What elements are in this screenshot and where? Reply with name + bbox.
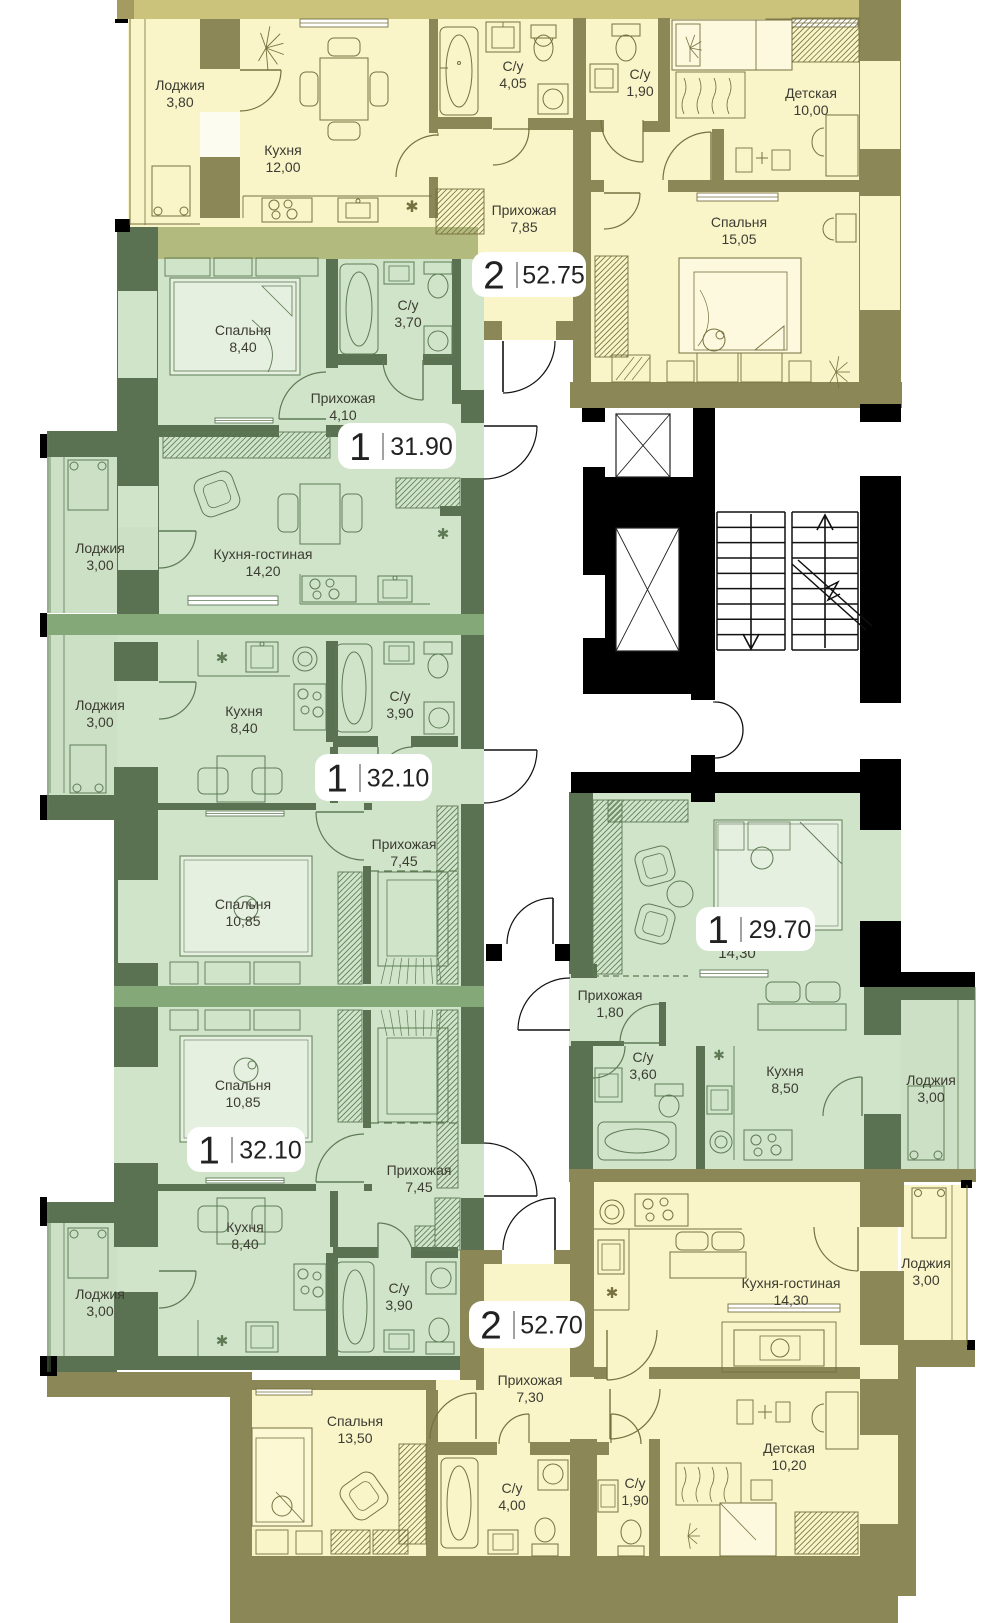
svg-text:1: 1 — [349, 426, 371, 469]
svg-text:12,00: 12,00 — [265, 159, 300, 175]
svg-text:Спальня: Спальня — [711, 214, 767, 230]
svg-text:✱: ✱ — [437, 526, 450, 543]
svg-text:С/у: С/у — [633, 1049, 654, 1065]
svg-text:Прихожая: Прихожая — [311, 390, 376, 406]
svg-text:3,60: 3,60 — [629, 1066, 656, 1082]
svg-text:Спальня: Спальня — [327, 1413, 383, 1429]
svg-text:3,00: 3,00 — [86, 557, 113, 573]
svg-text:Прихожая: Прихожая — [372, 836, 437, 852]
svg-text:✱: ✱ — [216, 1333, 229, 1350]
svg-text:Кухня: Кухня — [264, 142, 301, 158]
svg-text:14,20: 14,20 — [245, 563, 280, 579]
svg-text:4,00: 4,00 — [498, 1497, 525, 1513]
svg-text:Спальня: Спальня — [215, 322, 271, 338]
svg-text:13,50: 13,50 — [337, 1430, 372, 1446]
svg-text:10,00: 10,00 — [793, 102, 828, 118]
svg-text:15,05: 15,05 — [721, 231, 756, 247]
svg-text:29.70: 29.70 — [749, 916, 812, 944]
svg-text:1,90: 1,90 — [621, 1492, 648, 1508]
svg-text:Лоджия: Лоджия — [155, 77, 205, 93]
svg-text:С/у: С/у — [390, 688, 411, 704]
svg-text:Прихожая: Прихожая — [492, 202, 557, 218]
svg-text:8,40: 8,40 — [230, 720, 257, 736]
svg-text:Лоджия: Лоджия — [75, 540, 125, 556]
svg-text:3,00: 3,00 — [86, 1303, 113, 1319]
svg-text:4,10: 4,10 — [329, 407, 356, 423]
svg-text:31.90: 31.90 — [390, 433, 453, 461]
svg-text:✱: ✱ — [216, 650, 229, 667]
svg-text:52.70: 52.70 — [520, 1312, 583, 1340]
svg-text:3,00: 3,00 — [917, 1089, 944, 1105]
svg-text:Прихожая: Прихожая — [498, 1372, 563, 1388]
svg-text:С/у: С/у — [630, 66, 651, 82]
svg-text:Кухня-гостиная: Кухня-гостиная — [213, 546, 312, 562]
svg-text:✱: ✱ — [405, 199, 418, 216]
svg-text:С/у: С/у — [625, 1475, 646, 1491]
svg-text:Детская: Детская — [785, 85, 837, 101]
svg-text:Лоджия: Лоджия — [75, 1286, 125, 1302]
svg-text:2: 2 — [480, 1305, 502, 1348]
svg-text:2: 2 — [483, 255, 505, 298]
svg-text:1,80: 1,80 — [596, 1004, 623, 1020]
svg-text:✱: ✱ — [713, 1047, 725, 1063]
svg-text:Кухня: Кухня — [226, 1219, 263, 1235]
svg-text:Кухня-гостиная: Кухня-гостиная — [741, 1275, 840, 1291]
svg-text:Прихожая: Прихожая — [578, 987, 643, 1003]
svg-text:10,20: 10,20 — [771, 1457, 806, 1473]
svg-text:Лоджия: Лоджия — [75, 697, 125, 713]
svg-text:8,50: 8,50 — [771, 1080, 798, 1096]
svg-text:✱: ✱ — [606, 1285, 619, 1302]
svg-text:1,90: 1,90 — [626, 83, 653, 99]
svg-text:7,45: 7,45 — [405, 1179, 432, 1195]
svg-text:32.10: 32.10 — [239, 1137, 302, 1165]
svg-text:Прихожая: Прихожая — [387, 1162, 452, 1178]
svg-text:7,85: 7,85 — [510, 219, 537, 235]
svg-text:С/у: С/у — [398, 297, 419, 313]
svg-text:Спальня: Спальня — [215, 896, 271, 912]
svg-text:8,40: 8,40 — [231, 1236, 258, 1252]
svg-text:4,05: 4,05 — [499, 75, 526, 91]
svg-text:С/у: С/у — [389, 1280, 410, 1296]
svg-text:Лоджия: Лоджия — [906, 1072, 956, 1088]
svg-text:Кухня: Кухня — [225, 703, 262, 719]
svg-text:1: 1 — [326, 758, 348, 801]
svg-text:10,85: 10,85 — [225, 913, 260, 929]
svg-text:3,70: 3,70 — [394, 314, 421, 330]
svg-text:Лоджия: Лоджия — [901, 1255, 951, 1271]
svg-text:1: 1 — [707, 909, 729, 952]
svg-text:Детская: Детская — [763, 1440, 815, 1456]
svg-text:Кухня: Кухня — [766, 1063, 803, 1079]
svg-text:3,90: 3,90 — [385, 1297, 412, 1313]
svg-text:8,40: 8,40 — [229, 339, 256, 355]
svg-text:7,45: 7,45 — [390, 853, 417, 869]
svg-text:10,85: 10,85 — [225, 1094, 260, 1110]
svg-text:14,30: 14,30 — [773, 1292, 808, 1308]
svg-text:3,00: 3,00 — [912, 1272, 939, 1288]
svg-text:3,90: 3,90 — [386, 705, 413, 721]
svg-text:32.10: 32.10 — [367, 765, 430, 793]
svg-text:52.75: 52.75 — [522, 262, 585, 290]
svg-text:С/у: С/у — [503, 58, 524, 74]
svg-text:С/у: С/у — [502, 1480, 523, 1496]
svg-text:Спальня: Спальня — [215, 1077, 271, 1093]
svg-text:3,80: 3,80 — [166, 94, 193, 110]
svg-text:1: 1 — [198, 1130, 220, 1173]
svg-text:7,30: 7,30 — [516, 1389, 543, 1405]
svg-text:3,00: 3,00 — [86, 714, 113, 730]
